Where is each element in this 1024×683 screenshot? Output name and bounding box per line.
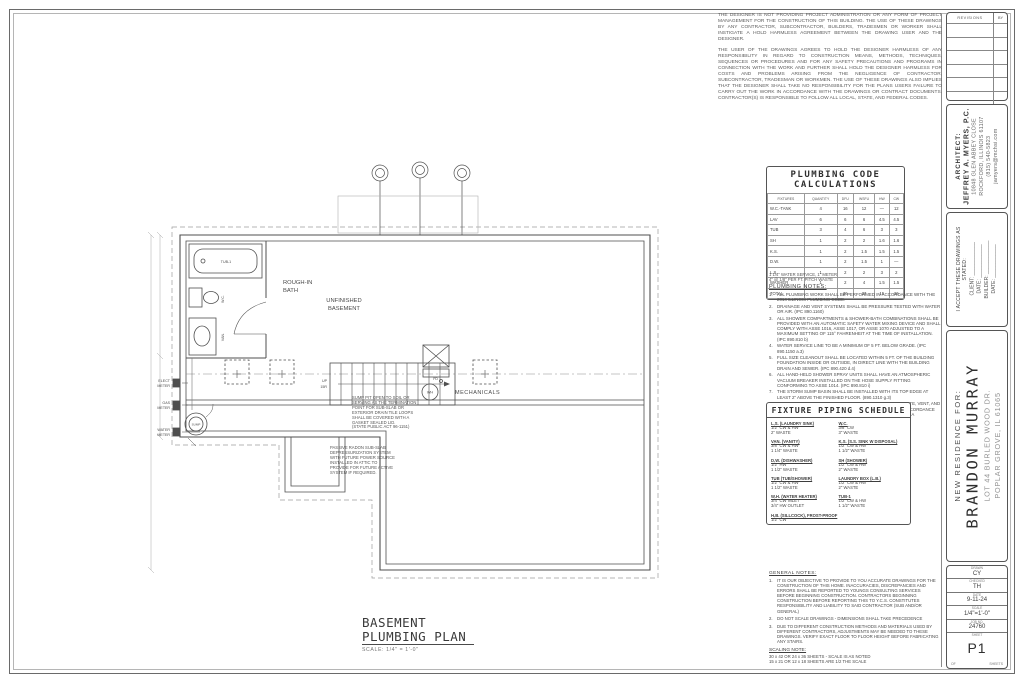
fixture-pipe-spec: 2" WASTE: [839, 486, 907, 491]
info-value: 9-11-24: [947, 597, 1007, 604]
calc-cell: 1: [804, 246, 837, 257]
info-row: JOB NO.24760: [947, 620, 1007, 633]
note-number: 3.: [769, 316, 777, 342]
drawing-scale: SCALE: 1/4" = 1'-0": [362, 647, 474, 653]
calc-cell: 6: [853, 225, 874, 236]
calc-cell: 6: [804, 214, 837, 225]
calc-header-cell: QUANTITY: [804, 194, 837, 204]
note-item: 7.THE STORM SUMP BASIN SHALL BE INSTALLE…: [769, 389, 941, 399]
unfinished-basement-label: UNFINISHED: [326, 298, 361, 304]
disclaimer-paragraph-1: THE DESIGNER IS NOT PROVIDING PROJECT AD…: [718, 13, 942, 43]
calc-cell: LAV: [768, 214, 805, 225]
calc-cell: 2: [853, 235, 874, 246]
fixture-pipe-spec: 1 1/4" WASTE: [771, 449, 839, 454]
revision-row: [947, 37, 1007, 51]
calc-row: TUB34633: [768, 225, 904, 236]
project-prefix: NEW RESIDENCE FOR:: [953, 363, 962, 529]
info-row: DATE9-11-24: [947, 593, 1007, 606]
revisions-by-header: BY: [994, 13, 1007, 23]
fixture-entry: TUB (TUB/SHOWER)1/2" CW & HW1 1/2" WASTE: [771, 476, 839, 491]
calc-cell: 4.5: [889, 214, 903, 225]
revision-row: [947, 23, 1007, 37]
calc-header-cell: HW: [875, 194, 889, 204]
revision-by-cell: [994, 38, 1007, 51]
fixture-pipe-spec: 1 1/2" WASTE: [771, 468, 839, 473]
fixture-entry: W.H. (WATER HEATER)3/4" CW INLET3/4" HW …: [771, 494, 839, 509]
note-item: 2.DRAINAGE AND VENT SYSTEMS SHALL BE PRE…: [769, 304, 941, 314]
note-text: DUE TO DIFFERENT CONSTRUCTION METHODS AN…: [777, 624, 939, 644]
note-text: ALL HAND-HELD SHOWER SPRAY UNITS SHALL H…: [777, 372, 941, 388]
calc-cell: 1.6: [875, 235, 889, 246]
revision-desc-cell: [947, 38, 994, 51]
note-text: ALL SHOWER COMPARTMENTS & SHOWER-BATH CO…: [777, 316, 941, 342]
wc-label: W.C.: [221, 295, 225, 303]
project-address-2: POPLAR GROVE, IL 61065: [992, 363, 1001, 529]
revisions-header: REVISIONS: [947, 13, 994, 23]
note-text: FULL SIZE CLEANOUT SHALL BE LOCATED WITH…: [777, 355, 941, 371]
architect-name: JEFFREY A. MYERS, P.C.: [963, 108, 970, 205]
calc-cell: 3: [875, 225, 889, 236]
title-underline: [362, 644, 474, 645]
project-client-name: BRANDON MURRAY: [963, 363, 981, 529]
drawing-sheet: THE DESIGNER IS NOT PROVIDING PROJECT AD…: [0, 0, 1024, 683]
sheet-number-area: SHEET P1: [947, 633, 1007, 662]
revision-row: [947, 91, 1007, 105]
fixture-pipe-spec: 1 1/2" WASTE: [839, 449, 907, 454]
note-item: 2.DO NOT SCALE DRAWINGS - DIMENSIONS SHA…: [769, 616, 939, 621]
revision-desc-cell: [947, 24, 994, 37]
calc-cell: K.S.: [768, 246, 805, 257]
note-item: 3.ALL SHOWER COMPARTMENTS & SHOWER-BATH …: [769, 316, 941, 342]
calc-header-cell: DFU: [837, 194, 853, 204]
fixture-pipe-spec: 1 1/2" WASTE: [839, 504, 907, 509]
fixture-piping-schedule: FIXTURE PIPING SCHEDULE L.S. (LAUNDRY SI…: [766, 402, 911, 525]
architect-label: ARCHITECT:: [955, 108, 962, 205]
note-number: 6.: [769, 372, 777, 388]
calc-cell: 1: [804, 256, 837, 267]
revision-desc-cell: [947, 92, 994, 105]
fixture-pipe-spec: 3/4" HW OUTLET: [771, 504, 839, 509]
calc-header-cell: WSFU: [853, 194, 874, 204]
note-text: DO NOT SCALE DRAWINGS - DIMENSIONS SHALL…: [777, 616, 939, 621]
project-address-1: LOT 44 BURLED WOOD DR.: [982, 363, 991, 529]
disclaimer-block: THE DESIGNER IS NOT PROVIDING PROJECT AD…: [718, 13, 942, 107]
rough-in-bath-label: ROUGH-IN: [283, 280, 312, 286]
calc-cell: 6: [853, 214, 874, 225]
acceptance-signature-line: BUILDER: ____________: [984, 215, 990, 323]
fixture-schedule-right-column: W.C.3/8" CW3" WASTEK.S. (S.S. SINK W DIS…: [839, 421, 907, 526]
calc-cell: 3: [889, 225, 903, 236]
info-value: CY: [947, 571, 1007, 578]
toilet-bowl: [204, 292, 219, 304]
architect-address-2: ROCKFORD, ILLINOIS 61107: [979, 108, 985, 205]
drawing-title-line2: PLUMBING PLAN: [362, 630, 474, 644]
calc-cell: 1.5: [875, 246, 889, 257]
fixture-entry: K.S. (S.S. SINK W DISPOSAL)1/2" CW & HW1…: [839, 439, 907, 454]
revision-by-cell: [994, 24, 1007, 37]
sheets-label: SHEETS: [989, 662, 1003, 666]
calc-row: W.C.-TANK41612—12: [768, 204, 904, 215]
deck-piers: [338, 162, 478, 235]
fixture-entry: SH (SHOWER)1/2" CW & HW2" WASTE: [839, 458, 907, 473]
note-number: 1.: [769, 578, 777, 614]
acceptance-signature-line: CLIENT: ____________: [970, 215, 976, 323]
revisions-block: REVISIONS BY: [946, 12, 1008, 101]
fixture-entry: L.S. (LAUNDRY SINK)1/2" CW & HW2" WASTE: [771, 421, 839, 436]
calc-row: D.W.121.51—: [768, 256, 904, 267]
note-text: IT IS OUR OBJECTIVE TO PROVIDE TO YOU AC…: [777, 578, 939, 614]
calc-cell: 1: [875, 256, 889, 267]
fixture-entry: D.W. (DISHWASHER)1/2" HW1 1/2" WASTE: [771, 458, 839, 473]
calc-cell: 1.5: [853, 246, 874, 257]
wh-label: WH: [427, 391, 434, 395]
calc-cell: SH: [768, 235, 805, 246]
revision-by-cell: [994, 92, 1007, 105]
fixture-entry: LAUNDRY BOX (L.B.)1/2" CW & HW2" WASTE: [839, 476, 907, 491]
note-item: 5.FULL SIZE CLEANOUT SHALL BE LOCATED WI…: [769, 355, 941, 371]
general-notes-list: 1.IT IS OUR OBJECTIVE TO PROVIDE TO YOU …: [769, 578, 939, 644]
info-value: 1/4"=1'-0": [947, 611, 1007, 618]
water-meter-label: WATER: [157, 428, 170, 432]
calc-cell: TUB: [768, 225, 805, 236]
calc-cell: W.C.-TANK: [768, 204, 805, 215]
calc-table-title: PLUMBING CODE CALCULATIONS: [767, 167, 904, 190]
general-notes: GENERAL NOTES: 1.IT IS OUR OBJECTIVE TO …: [769, 571, 939, 664]
chimney-chase: [423, 345, 449, 377]
revision-row: [947, 50, 1007, 64]
rough-in-bath-label: BATH: [283, 288, 298, 294]
note-item: 1.ALL PLUMBING WORK SHALL BE PERFORMED I…: [769, 292, 941, 302]
plumbing-notes: PLUMBING NOTES: 1.ALL PLUMBING WORK SHAL…: [769, 284, 941, 418]
fixture-pipe-spec: 2" WASTE: [839, 468, 907, 473]
project-block: NEW RESIDENCE FOR: BRANDON MURRAY LOT 44…: [946, 330, 1008, 562]
fixture-schedule-title: FIXTURE PIPING SCHEDULE: [767, 403, 910, 418]
fixture-pipe-spec: 3" WASTE: [839, 431, 907, 436]
door-swing: [234, 302, 266, 334]
calc-cell: 1.5: [889, 246, 903, 257]
calc-row: K.S.121.51.51.5: [768, 246, 904, 257]
note-text: ALL PLUMBING WORK SHALL BE PERFORMED IN …: [777, 292, 941, 302]
note-number: 3.: [769, 624, 777, 644]
fd-label: FD: [433, 377, 438, 381]
note-item: 1.IT IS OUR OBJECTIVE TO PROVIDE TO YOU …: [769, 578, 939, 614]
tub-label: TUB-1: [221, 260, 231, 264]
calc-cell: 2: [837, 256, 853, 267]
plumbing-notes-list: 1.ALL PLUMBING WORK SHALL BE PERFORMED I…: [769, 292, 941, 417]
revision-by-cell: [994, 65, 1007, 78]
water-meter-label: METER: [157, 433, 170, 437]
utility-meters: [173, 379, 200, 436]
note-text: DRAINAGE AND VENT SYSTEMS SHALL BE PRESS…: [777, 304, 941, 314]
calc-cell: —: [875, 204, 889, 215]
vanity-sink: [194, 326, 210, 346]
note-number: 4.: [769, 343, 777, 353]
acceptance-block: I ACCEPT THESE DRAWINGS AS STATED:CLIENT…: [946, 212, 1008, 327]
calc-cell: 4: [837, 225, 853, 236]
toilet-tank: [189, 288, 202, 307]
fixture-entry: H.B. (SILLCOCK), FROST-PROOF1/2" CW: [771, 513, 839, 523]
gas-meter-label: GAS: [162, 401, 170, 405]
scaling-note-title: SCALING NOTE:: [769, 648, 939, 653]
calc-header-cell: FIXTURES: [768, 194, 805, 204]
calc-cell: 2: [837, 246, 853, 257]
calc-cell: 3: [804, 225, 837, 236]
calc-cell: 1.5: [853, 256, 874, 267]
info-row: CHECKEDTH: [947, 579, 1007, 592]
calc-cell: 4: [804, 204, 837, 215]
mechanicals-label: MECHANICALS: [455, 390, 500, 396]
architect-address-1: 10848 GLEN ABBEY CLOSE: [971, 108, 977, 205]
calc-cell: 4.5: [875, 214, 889, 225]
fixture-pipe-spec: 1 1/2" WASTE: [771, 486, 839, 491]
note-text: WATER SERVICE LINE TO BE A MINIMUM OF 5 …: [777, 343, 941, 353]
info-row: SCALE1/4"=1'-0": [947, 606, 1007, 619]
calc-cell: 2: [837, 235, 853, 246]
acceptance-signature-line: DATE: ____________: [991, 215, 997, 323]
calc-header-row: FIXTURESQUANTITYDFUWSFUHWCW: [768, 194, 904, 204]
of-label: OF: [951, 662, 956, 666]
architect-phone: (815) 540-5823: [986, 108, 992, 205]
fixture-schedule-left-column: L.S. (LAUNDRY SINK)1/2" CW & HW2" WASTEV…: [771, 421, 839, 526]
fixture-pipe-spec: 2" WASTE: [771, 431, 839, 436]
drawing-title-line1: BASEMENT: [362, 616, 474, 630]
calc-row: LAV6664.54.5: [768, 214, 904, 225]
acceptance-signature-line: DATE: ____________: [977, 215, 983, 323]
fixture-entry: W.C.3/8" CW3" WASTE: [839, 421, 907, 436]
note-number: 1.: [769, 292, 777, 302]
title-strip-separator: [941, 14, 942, 667]
sump-label: SUMP: [192, 423, 201, 427]
scaling-note-line: 15 x 21 OR 12 x 18 SHEETS ARE 1/2 THE SC…: [769, 659, 939, 664]
info-value: 24760: [947, 624, 1007, 631]
note-text: THE STORM SUMP BASIN SHALL BE INSTALLED …: [777, 389, 941, 399]
plumbing-notes-title: PLUMBING NOTES:: [769, 284, 941, 290]
fixture-pipe-spec: 1/2" CW: [771, 518, 839, 523]
calc-cell: 6: [837, 214, 853, 225]
acceptance-title: I ACCEPT THESE DRAWINGS AS STATED:: [957, 215, 969, 323]
calc-cell: 12: [889, 204, 903, 215]
revision-by-cell: [994, 78, 1007, 91]
stairs-risers-label: 15R: [320, 385, 327, 389]
revision-row: [947, 77, 1007, 91]
note-item: 6.ALL HAND-HELD SHOWER SPRAY UNITS SHALL…: [769, 372, 941, 388]
architect-block: ARCHITECT:JEFFREY A. MYERS, P.C.10848 GL…: [946, 104, 1008, 209]
note-number: 2.: [769, 304, 777, 314]
elect-meter-label: ELECT: [158, 379, 170, 383]
general-notes-title: GENERAL NOTES:: [769, 571, 939, 576]
van-label: VAN.: [221, 333, 225, 341]
unfinished-basement-label: BASEMENT: [328, 306, 360, 312]
revision-desc-cell: [947, 78, 994, 91]
revision-row: [947, 64, 1007, 78]
calc-header-cell: CW: [889, 194, 903, 204]
calc-cell: 1: [804, 235, 837, 246]
fixture-entry: VAN. (VANITY)3/8" CW & HW1 1/4" WASTE: [771, 439, 839, 454]
calc-row: SH1221.61.6: [768, 235, 904, 246]
note-number: 2.: [769, 616, 777, 621]
note-number: 7.: [769, 389, 777, 399]
revision-desc-cell: [947, 65, 994, 78]
floor-plan: ROUGH-IN BATH UNFINISHED BASEMENT MECHAN…: [138, 148, 682, 592]
stairs-up-label: UP: [322, 379, 328, 383]
vanity: [189, 318, 216, 355]
disclaimer-paragraph-2: THE USER OF THE DRAWINGS AGREES TO HOLD …: [718, 48, 942, 102]
calc-footnotes: 1 1/4" WATER SERVICE, 1" METER 4" @ 1/8"…: [769, 272, 919, 282]
sheet-number: P1: [947, 638, 1007, 658]
calc-cell: 16: [837, 204, 853, 215]
dimension-lines: [148, 232, 163, 573]
fixture-entry: TUB-11/2" CW & HW1 1/2" WASTE: [839, 494, 907, 509]
note-item: 3.DUE TO DIFFERENT CONSTRUCTION METHODS …: [769, 624, 939, 644]
sump-pit: [185, 404, 213, 435]
sheet-info-block: DRAWNCYCHECKEDTHDATE9-11-24SCALE1/4"=1'-…: [946, 565, 1008, 669]
bath-room: [186, 241, 266, 358]
note-number: 5.: [769, 355, 777, 371]
sump-note: SUMP PIT OPEN TO SOIL OR SERVING AS THE …: [352, 396, 434, 430]
drawing-title: BASEMENT PLUMBING PLAN SCALE: 1/4" = 1'-…: [362, 616, 474, 653]
architect-email: jamyers@mchsi.com: [993, 108, 999, 205]
calc-cell: 1.6: [889, 235, 903, 246]
column-footings: [225, 360, 497, 384]
gas-meter-label: METER: [157, 406, 170, 410]
elect-meter-label: METER: [157, 384, 170, 388]
calc-cell: —: [889, 256, 903, 267]
note-item: 4.WATER SERVICE LINE TO BE A MINIMUM OF …: [769, 343, 941, 353]
revision-desc-cell: [947, 51, 994, 64]
info-value: TH: [947, 584, 1007, 591]
calc-cell: 12: [853, 204, 874, 215]
revision-by-cell: [994, 51, 1007, 64]
calc-cell: D.W.: [768, 256, 805, 267]
radon-note: PASSIVE RADON SUB-SLAB DEPRESSURIZATION …: [330, 446, 408, 475]
info-row: DRAWNCY: [947, 566, 1007, 579]
